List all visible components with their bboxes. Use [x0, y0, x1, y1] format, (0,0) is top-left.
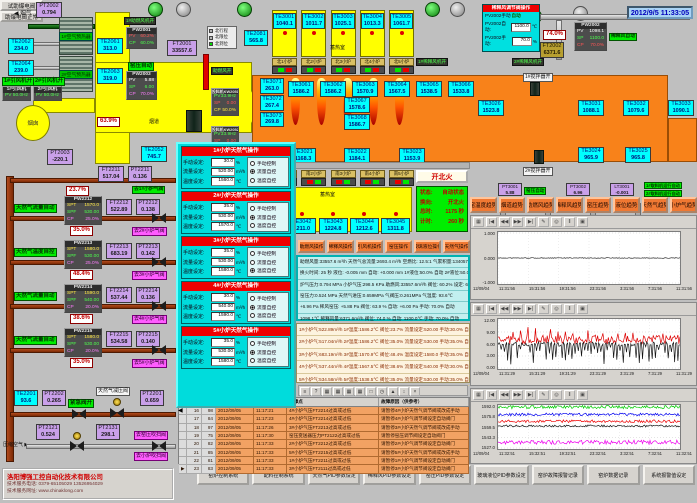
furnace-te-row: TE30611586.2TE30621586.2TE30631570.9TE30… — [288, 81, 474, 97]
id-fan2-freq[interactable]: 2#引风机 PV50.0Hz — [33, 86, 62, 101]
te-box: TE30641567.5 — [384, 81, 410, 97]
gas-controller[interactable]: PW2215 SPT1580.0 SPF530.00 CP20.0% — [64, 328, 102, 357]
temp-set-input[interactable]: 1570.0 — [211, 222, 235, 231]
alarm-table-row[interactable]: 18 97 2012/09/05 11:17:26 3#小炉气压FT2213过高… — [179, 424, 469, 432]
manual-input[interactable]: 70.0 — [512, 37, 532, 46]
gas-line-row: 天然气流量自动 PW2214 SPT1590.0 SPF540.00 CP20.… — [0, 284, 176, 328]
chart-plot[interactable] — [498, 405, 680, 449]
radio-icon[interactable] — [250, 169, 255, 174]
y-tick-label: 1592.0 — [471, 404, 495, 409]
alarm-dot-icon — [362, 212, 366, 216]
chart-toolbar-icon[interactable]: |◀ — [486, 217, 497, 227]
emergency-valve-label: 紧急阀开 — [68, 399, 94, 408]
gas-auto-label: 天然气流量自动 — [14, 336, 57, 345]
flow-set-input[interactable]: 530.00 — [211, 348, 235, 357]
y-tick-label: -1.000 — [471, 280, 495, 285]
nav-button[interactable]: 玻璃液位PID参数设定 — [474, 465, 528, 485]
trend-button[interactable]: 液位趋势 — [613, 197, 640, 213]
chart-toolbar-icon[interactable]: |◀ — [486, 304, 497, 314]
radio-manual[interactable]: 手动控制 — [250, 250, 286, 257]
scada-screen: ◀ 烟气 PT20020.794 1#空气预热器 2#空气预热器 TE20622… — [0, 0, 697, 503]
regen-bottom-cell: TE30431224.8 — [319, 210, 348, 234]
stirrer-motor-icon — [530, 82, 540, 96]
chart-toolbar-icon[interactable]: ‖ — [564, 217, 575, 227]
furnace-gas-panel: 5#小炉天然气操作 手动设定:35.0% 流量设定:530.00m³/h 温度设… — [181, 326, 291, 369]
te-box: TE30611586.2 — [288, 81, 314, 97]
manual-set-label: 手动设定: — [183, 339, 210, 346]
chart-toolbar-icon[interactable]: ▶▶ — [512, 390, 523, 400]
feeder1-controller[interactable]: 投料机KW2051 PV33.9Hz SP0.00 CP50.0% — [211, 88, 239, 116]
id-fan2-run-label: 2#引风机开 — [33, 77, 65, 86]
gas-dest-label: 去4#小炉气阀 — [132, 315, 167, 324]
port-cell[interactable]: 南2小炉 — [301, 170, 326, 186]
chart-toolbar-icon[interactable]: ✎ — [538, 390, 549, 400]
furnace-status-line: 3#小炉气:683.19m³/h 3#温度:1570.9℃ 阀位:48.4% 温… — [297, 349, 469, 361]
regenerator-cell: TE30041013.3 — [360, 10, 385, 57]
gas-valve-percent: 48.4% — [70, 270, 93, 280]
pw2003-controller[interactable]: PW2003 PV5.88 SP6.00 CP70.0% — [126, 71, 157, 100]
info-line: 换火时间: 25 秒 液位: -0.005 mm 自动: +0.000 mm 1… — [298, 268, 468, 279]
temp-set-label: 温度设定: — [183, 313, 210, 320]
ft2211-box: FT2211517.04 — [98, 166, 124, 182]
radio-icon[interactable] — [250, 268, 255, 273]
reducing-valve-icon[interactable] — [110, 408, 124, 418]
ft2002-box: FT20026371.6 — [540, 42, 564, 58]
radio-icon[interactable] — [250, 350, 255, 355]
mode-label: PV2002手动 — [485, 13, 511, 19]
y-tick-label: 0.000 — [471, 256, 495, 261]
id-fan1-run-label: 1#引风机开 — [2, 77, 34, 86]
pw2002-controller[interactable]: PW2002 PV1098.1 SP1100.0 CP70.0% — [574, 22, 607, 51]
pressure-reducer-label: 天然气减压阀 — [96, 387, 130, 396]
alarm-toolbar-icon[interactable]: ▲ — [388, 387, 398, 396]
gas-inlet-pipe — [10, 412, 176, 417]
te-box: TE3072267.4 — [260, 95, 284, 111]
x-tick-label: 3:32:51 — [620, 451, 634, 456]
furnace-gas-panel: 1#小炉天然气操作 手动设定:30.0% 流量设定:520.00m³/h 温度设… — [181, 146, 291, 189]
furnace-right-ext — [668, 118, 697, 162]
te2052-box: TE2052745.7 — [141, 146, 167, 162]
chart-toolbar-icon[interactable]: ◀◀ — [499, 390, 510, 400]
operate-button[interactable]: 引风机操作 — [356, 240, 383, 253]
flow-set-input[interactable]: 530.00 — [211, 213, 235, 222]
radio-icon[interactable] — [250, 215, 255, 220]
manual-set-input[interactable]: 30.0 — [211, 293, 235, 302]
trend-button[interactable]: 天然气趋势 — [642, 197, 669, 213]
y-tick-label: 0.00 — [471, 365, 495, 370]
radio-flow-auto[interactable]: 流量自控 — [250, 259, 286, 266]
te2063-box: TE2063319.0 — [97, 68, 123, 84]
mode-radio-group: 手动控制 流量自控 温度自控 — [247, 247, 289, 277]
gas-valve-percent: 35.0% — [70, 226, 93, 236]
alarm-toolbar: ≡?▦▦▦▦□◷▲↕× — [298, 385, 468, 396]
temp-set-label: 温度设定: — [183, 268, 210, 275]
trend-button[interactable]: 窑温度趋势 — [470, 197, 497, 213]
dilution-valve-dialog: 稀释风调节阀操作 PV2002手动自动 PV2002自动:1100.0℃ PV2… — [482, 4, 540, 52]
te-right-box: TE30321079.6 — [623, 100, 649, 116]
chart-toolbar: ▦|◀◀◀▶▶▶|✎◎‖▣ — [471, 389, 696, 402]
nav-button[interactable]: 窑炉故障报警记录 — [532, 465, 584, 485]
manual-label: PV2002手动: — [485, 35, 511, 47]
radio-icon[interactable] — [250, 178, 255, 183]
furnace-status-line: 1#小炉气:522.89m³/h 1#温度:1586.2℃ 阀位:23.7% 流… — [297, 324, 469, 336]
manual-set-label: 手动设定: — [183, 159, 210, 166]
trend-button[interactable]: 助燃风趋势 — [527, 197, 554, 213]
y-tick-label: 1559.5 — [471, 425, 495, 430]
company-name: 洛阳博强工控自动化技术有限公司 — [7, 472, 169, 481]
port-cell[interactable]: 北5小炉 — [389, 58, 414, 74]
te-box: TE30621586.2 — [320, 81, 346, 97]
chart-toolbar-icon[interactable]: ▶▶ — [512, 304, 523, 314]
gas-auto-label: 天然气流量自动 — [14, 292, 57, 301]
auto-sp-input[interactable]: 1100.0 — [511, 23, 531, 32]
panel-title: 1#小炉天然气操作 — [182, 147, 290, 156]
flue-damper-percent: 63.9% — [97, 117, 120, 127]
y-tick-label: 6.00 — [471, 342, 495, 347]
flow-set-input[interactable]: 520.00 — [211, 168, 235, 177]
gas-controller[interactable]: PW2213 SPT1580.0 SPF530.00 CP25.0% — [64, 240, 102, 269]
radio-temp-auto[interactable]: 温度自控 — [250, 222, 286, 229]
chart-toolbar-icon[interactable]: ▦ — [473, 304, 484, 314]
te-box: TE30031025.1 — [332, 13, 355, 29]
reversal-legend: 北行程北限位北到位 — [207, 26, 237, 49]
chart-toolbar-icon[interactable]: ‖ — [564, 390, 575, 400]
x-tick-label: 7:31:29 — [648, 371, 662, 376]
chart-toolbar: ▦|◀◀◀▶▶▶|✎◎‖▣ — [471, 216, 696, 229]
te-box: TE3073269.8 — [260, 112, 284, 128]
trend-chart-kiln-pressure: ▦|◀◀◀▶▶▶|✎◎‖▣ 1.0000.000-1.000 12/09/04 … — [470, 215, 697, 300]
te-box: TE30041013.3 — [361, 13, 384, 29]
chart-toolbar-icon[interactable]: ▣ — [577, 390, 588, 400]
alarm-toolbar-icon[interactable]: □ — [366, 387, 376, 396]
chart-toolbar-icon[interactable]: ‖ — [564, 304, 575, 314]
fan-icon — [425, 2, 440, 17]
te2064-box: TE2064239.0 — [8, 60, 34, 76]
furnace-status-box: 1#小炉气:522.89m³/h 1#温度:1586.2℃ 阀位:23.7% 流… — [296, 323, 470, 383]
control-valve-icon[interactable] — [152, 345, 166, 355]
chart-toolbar: ▦|◀◀◀▶▶▶|✎◎‖▣ — [471, 303, 696, 316]
radio-temp-auto[interactable]: 温度自控 — [250, 312, 286, 319]
alarm-dot-icon — [341, 31, 345, 35]
radio-temp-auto[interactable]: 温度自控 — [250, 357, 286, 364]
id-fan1-freq[interactable]: 1#引风机 PV50.0Hz — [2, 86, 31, 101]
trend-button[interactable]: 小炉气趋势 — [670, 197, 697, 213]
gas-flow-box: FT2214537.44 — [106, 287, 132, 303]
radio-temp-auto[interactable]: 温度自控 — [250, 267, 286, 274]
x-axis-date: 12/09/04 — [473, 451, 499, 456]
manual-set-input[interactable]: 35.0 — [211, 338, 235, 347]
radio-flow-auto[interactable]: 流量自控 — [250, 214, 286, 221]
pt2131-box: PT2131298.1 — [96, 424, 120, 440]
manual-set-input[interactable]: 35.0 — [211, 203, 235, 212]
alarm-toolbar-icon[interactable]: ▦ — [344, 387, 354, 396]
gas-controller[interactable]: PW2212 SPT1570.0 SPF530.00 CP25.0% — [64, 196, 102, 225]
fan-icon — [148, 2, 163, 17]
panel-title: 5#小炉天然气操作 — [182, 327, 290, 336]
mode-radio-group: 手动控制 流量自控 温度自控 — [247, 292, 289, 322]
x-tick-label: 11:31:56 — [499, 286, 515, 291]
chart-toolbar-icon[interactable]: ◎ — [551, 217, 562, 227]
te-right-box: TE30311088.1 — [578, 100, 604, 116]
y-tick-label: 1575.8 — [471, 414, 495, 419]
trend-chart-pressure-flue: ▦|◀◀◀▶▶▶|✎◎‖▣ 12.009.006.003.000.00 12/0… — [470, 302, 697, 386]
radio-manual[interactable]: 手动控制 — [250, 295, 286, 302]
chart-toolbar-icon[interactable]: |◀ — [486, 390, 497, 400]
radio-icon[interactable] — [250, 260, 255, 265]
trend-chart-furnace-temps: ▦|◀◀◀▶▶▶|✎◎‖▣ 1592.01575.81559.51543.315… — [470, 388, 697, 464]
trend-button[interactable]: 烟道趋势 — [499, 197, 526, 213]
alarm-toolbar-icon[interactable]: ? — [311, 387, 321, 396]
gas-dest-label: 去5#小炉气阀 — [132, 359, 167, 368]
alarm-toolbar-icon[interactable]: ≡ — [300, 387, 310, 396]
mode-value[interactable]: 自动 — [512, 13, 521, 19]
chart-plot[interactable] — [498, 319, 680, 369]
chart-toolbar-icon[interactable]: ◀◀ — [499, 304, 510, 314]
alarm-toolbar-icon[interactable]: ▦ — [355, 387, 365, 396]
flow-set-input[interactable]: 530.00 — [211, 258, 235, 267]
flow-set-input[interactable]: 540.00 — [211, 303, 235, 312]
gas-valve-percent: 38.6% — [70, 314, 93, 324]
temp-set-input[interactable]: 1590.0 — [211, 312, 235, 321]
flow-set-label: 流量设定: — [183, 304, 210, 311]
chart-plot[interactable] — [498, 232, 680, 284]
pw2001-controller[interactable]: PW2001 PV60.2% CP60.0% — [126, 27, 157, 49]
alarm-toolbar-icon[interactable]: ◷ — [377, 387, 387, 396]
gas-dest-label: 去2#小炉气阀 — [132, 227, 167, 236]
temp-set-input[interactable]: 1580.0 — [211, 358, 235, 367]
info-line: 窑压力:0.524 MPa 天然气进压:0.659MPa 气阀压:0.261MP… — [298, 291, 468, 302]
chart-toolbar-icon[interactable]: ▶| — [525, 390, 536, 400]
gas-flow-box: FT2212522.89 — [106, 199, 132, 215]
alarm-dot-icon — [394, 212, 398, 216]
y-tick-label: 3.00 — [471, 353, 495, 358]
radio-manual[interactable]: 手动控制 — [250, 160, 286, 167]
dilution-auto-label: 稀释风自动 — [609, 33, 637, 41]
status-row: 状态:自动状态 — [420, 189, 464, 199]
pt2211-box: PT22110.136 — [128, 166, 152, 182]
status-row: 计时:260 秒 — [420, 218, 464, 228]
te-box: TE30441212.6 — [350, 218, 379, 234]
alarm-table-row[interactable]: ▶ 23 83 2012/09/05 11:17:33 3#小炉气压FT2111… — [179, 465, 469, 473]
te-box: TE30451311.8 — [381, 218, 410, 234]
x-tick-label: 7:32:51 — [648, 451, 662, 456]
air-dest2-label: 去小炉吹扫阀 — [134, 452, 168, 461]
nav-button[interactable]: 系统报警值设定 — [643, 465, 695, 485]
operate-button[interactable]: 窑压操作 — [385, 240, 412, 253]
dilution-fan1-run-label: 1#稀释风机开 — [416, 58, 448, 66]
x-tick-label: 23:31:56 — [590, 286, 606, 291]
air-preheater-2: 2#空气预热器 — [59, 56, 93, 92]
air-valve-icon[interactable] — [70, 441, 84, 451]
x-axis-date: 12/09/04 — [473, 371, 499, 376]
radio-icon[interactable] — [250, 296, 255, 301]
radio-icon[interactable] — [250, 161, 255, 166]
alarm-table-row[interactable]: 19 75 2012/09/05 11:17:30 窑压变送器压力PT2122过… — [179, 432, 469, 440]
alarm-toolbar-icon[interactable]: ↕ — [399, 387, 409, 396]
radio-manual[interactable]: 手动控制 — [250, 340, 286, 347]
air-preheater-1: 1#空气预热器 — [59, 17, 93, 55]
alarm-table-row[interactable]: 21 85 2012/09/05 11:17:33 5#小炉气压FT2215过高… — [179, 449, 469, 457]
air-valve-icon[interactable] — [152, 441, 166, 451]
y-tick-label: 1527.0 — [471, 445, 495, 450]
gas-line1-dest-label: 去1#小炉气阀 — [132, 186, 165, 194]
operate-button[interactable]: 助燃风操作 — [298, 240, 325, 253]
regen-bottom-cell: TE30451311.8 — [381, 210, 410, 234]
port-cell[interactable]: 北1小炉 — [272, 58, 297, 74]
radio-icon[interactable] — [250, 251, 255, 256]
x-tick-label: 19:31:29 — [559, 371, 575, 376]
alarm-table-row[interactable]: 17 84 2012/09/05 11:17:23 4#小炉气压FT2214过高… — [179, 415, 469, 423]
stirrer1-run-label: 1#搅拌器开 — [523, 73, 553, 82]
company-info-box: 洛阳博强工控自动化技术有限公司 技术服务电话: 0379-65105029 13… — [2, 468, 174, 500]
furnace-te-stack: TE30671578.6TE30681586.7 — [344, 97, 370, 130]
x-tick-label: 23:32:51 — [590, 451, 606, 456]
radio-flow-auto[interactable]: 流量自控 — [250, 168, 286, 175]
alarm-dot-icon — [283, 31, 287, 35]
te-box: TE30651538.5 — [416, 81, 442, 97]
chart-toolbar-icon[interactable]: ▶| — [525, 304, 536, 314]
x-tick-label: 23:31:29 — [590, 371, 606, 376]
radio-icon[interactable] — [250, 305, 255, 310]
regenerator-cell: TE30011040.1 — [272, 10, 297, 57]
mode-radio-group: 手动控制 流量自控 温度自控 — [247, 157, 289, 187]
chart-toolbar-icon[interactable]: ▣ — [577, 304, 588, 314]
radio-icon[interactable] — [250, 341, 255, 346]
stirrer2-run-label: 2#搅拌器开 — [523, 167, 553, 176]
chart-toolbar-icon[interactable]: ◎ — [551, 304, 562, 314]
chart-toolbar-icon[interactable]: ▦ — [473, 217, 484, 227]
chart-toolbar-icon[interactable]: ▶▶ — [512, 217, 523, 227]
x-tick-label: 19:32:51 — [559, 451, 575, 456]
mode-radio-group: 手动控制 流量自控 温度自控 — [247, 337, 289, 367]
info-line: +6.96 Pa 稀风窑压: +5.88 Pa 阀位: 63.9 % 自动: +… — [298, 302, 468, 313]
mode-radio-group: 手动控制 流量自控 温度自控 — [247, 202, 289, 232]
gas-controller[interactable]: PW2214 SPT1590.0 SPF540.00 CP20.0% — [64, 284, 102, 313]
port-cell[interactable]: 南3小炉 — [331, 170, 356, 186]
chart-toolbar-icon[interactable]: ◎ — [551, 390, 562, 400]
operate-button[interactable]: 天然气操作 — [443, 240, 470, 253]
gas-auto-label: 天然气温度自控 — [14, 248, 57, 257]
x-tick-label: 11:31:29 — [499, 371, 515, 376]
manual-set-label: 手动设定: — [183, 249, 210, 256]
port-cell[interactable]: 北2小炉 — [301, 58, 326, 74]
status-row: 换向:开北火 — [420, 199, 464, 209]
radio-icon[interactable] — [250, 358, 255, 363]
chart-toolbar-icon[interactable]: ✎ — [538, 304, 549, 314]
alarm-toolbar-icon[interactable]: × — [410, 387, 420, 396]
regen-bottom-cell: TE30441212.6 — [350, 210, 379, 234]
chart-toolbar-icon[interactable]: ✎ — [538, 217, 549, 227]
gas-line-row: 天然气温度自控 PW2213 SPT1580.0 SPF530.00 CP25.… — [0, 240, 176, 284]
air-dest1-label: 去窑压吹扫阀 — [134, 431, 168, 440]
chart-toolbar-icon[interactable]: ◀◀ — [499, 217, 510, 227]
company-phone: 技术服务电话: 0379-65105029 13526954029 — [7, 481, 169, 488]
port-cell[interactable]: 北4小炉 — [360, 58, 385, 74]
operate-buttons-row: 助燃风操作稀释风操作引风机操作窑压操作玻璃液位操作天然气操作 — [298, 240, 470, 253]
port-cell[interactable]: 南4小炉 — [360, 170, 385, 186]
lt3001-box: LT3001-0.001 — [610, 183, 634, 196]
gas-flow-box: FT2215534.58 — [106, 331, 132, 347]
alarm-dot-icon — [370, 31, 374, 35]
te-right-box: TE30261523.8 — [478, 100, 504, 116]
chart-toolbar-icon[interactable]: ▶| — [525, 217, 536, 227]
control-valve-icon[interactable] — [152, 301, 166, 311]
radio-flow-auto[interactable]: 流量自控 — [250, 349, 286, 356]
taker1-auto-label: 1#取料机运行自动 — [644, 182, 682, 189]
pt2202-box: PT22020.265 — [42, 390, 66, 406]
north-ports-row: 北1小炉 北2小炉 北3小炉 北4小炉 北5小炉 — [272, 58, 414, 74]
port-cell[interactable]: 北3小炉 — [331, 58, 356, 74]
manual-set-label: 手动设定: — [183, 294, 210, 301]
trend-button[interactable]: 窑压趋势 — [585, 197, 612, 213]
port-cell[interactable]: 南5小炉 — [389, 170, 414, 186]
pt3001-box: PT30015.88 — [498, 183, 522, 196]
motor-icon — [186, 110, 202, 132]
gas-flow-box: FT2213683.19 — [106, 243, 132, 259]
temp-set-input[interactable]: 1580.0 — [211, 267, 235, 276]
chart-toolbar-icon[interactable]: ▦ — [473, 390, 484, 400]
alarm-toolbar-icon[interactable]: ▦ — [322, 387, 332, 396]
trend-button[interactable]: 稀释风趋势 — [556, 197, 583, 213]
manual-set-input[interactable]: 30.0 — [211, 158, 235, 167]
furnace-gas-panel: 3#小炉天然气操作 手动设定:35.0% 流量设定:530.00m³/h 温度设… — [181, 236, 291, 279]
fan-icon — [450, 2, 465, 17]
chart-toolbar-icon[interactable]: ▣ — [577, 217, 588, 227]
flow-set-label: 流量设定: — [183, 259, 210, 266]
emergency-valve-icon[interactable] — [72, 409, 86, 419]
alarm-table-row[interactable]: 22 81 2012/09/05 11:17:33 1#小炉气压FT2211过高… — [179, 457, 469, 465]
te-box: TE30051061.7 — [390, 13, 413, 29]
control-valve-icon[interactable] — [152, 257, 166, 267]
temp-set-input[interactable]: 1560.0 — [211, 177, 235, 186]
stirrer-motor-icon — [534, 150, 544, 164]
operate-button[interactable]: 玻璃液位操作 — [414, 240, 441, 253]
x-tick-label: 15:32:51 — [529, 451, 545, 456]
ft2001-box: FT200133557.6 — [167, 40, 197, 56]
te-box: TE30431224.8 — [319, 218, 348, 234]
x-tick-label: 15:31:56 — [529, 286, 545, 291]
radio-icon[interactable] — [250, 313, 255, 318]
radio-icon[interactable] — [250, 206, 255, 211]
alarm-dot-icon — [300, 212, 304, 216]
radio-manual[interactable]: 手动控制 — [250, 205, 286, 212]
radio-flow-auto[interactable]: 流量自控 — [250, 304, 286, 311]
y-tick-label: 1.000 — [471, 231, 495, 236]
pt2003-box: PT2003-220.1 — [47, 149, 73, 165]
nav-button[interactable]: 窑炉数据记录 — [587, 465, 639, 485]
control-valve-icon[interactable] — [152, 213, 166, 223]
valve-actuator-icon — [113, 398, 121, 406]
alarm-toolbar-icon[interactable]: ▦ — [333, 387, 343, 396]
manual-set-input[interactable]: 35.0 — [211, 248, 235, 257]
furnace-gas-panel: 2#小炉天然气操作 手动设定:35.0% 流量设定:530.00m³/h 温度设… — [181, 191, 291, 234]
alarm-table-row[interactable]: 16 98 2012/09/05 11:17:21 4#小炉气压FT2214过高… — [179, 407, 469, 415]
comb-air-bar — [203, 54, 209, 90]
operate-button[interactable]: 稀释风操作 — [327, 240, 354, 253]
gas-auto-label: 天然气流量自动 — [14, 204, 57, 213]
comb-air-open-label: 助燃风开 — [211, 67, 233, 75]
gas-line1-valve-percent: 23.7% — [66, 186, 89, 196]
alarm-table-row[interactable]: 20 82 2012/09/05 11:17:33 2#小炉气压FT2212过高… — [179, 440, 469, 448]
radio-icon[interactable] — [250, 223, 255, 228]
alarm-dot-icon — [400, 31, 404, 35]
y-tick-label: 12.00 — [471, 318, 495, 323]
regenerator-cell: TE30021011.7 — [301, 10, 326, 57]
gas-line-row: 天然气流量自动 PW2212 SPT1570.0 SPF530.00 CP25.… — [0, 196, 176, 240]
fire-north-button[interactable]: 开北火 — [416, 170, 468, 183]
table-scroll-left-icon[interactable]: ◀ — [178, 407, 183, 414]
radio-temp-auto[interactable]: 温度自控 — [250, 177, 286, 184]
